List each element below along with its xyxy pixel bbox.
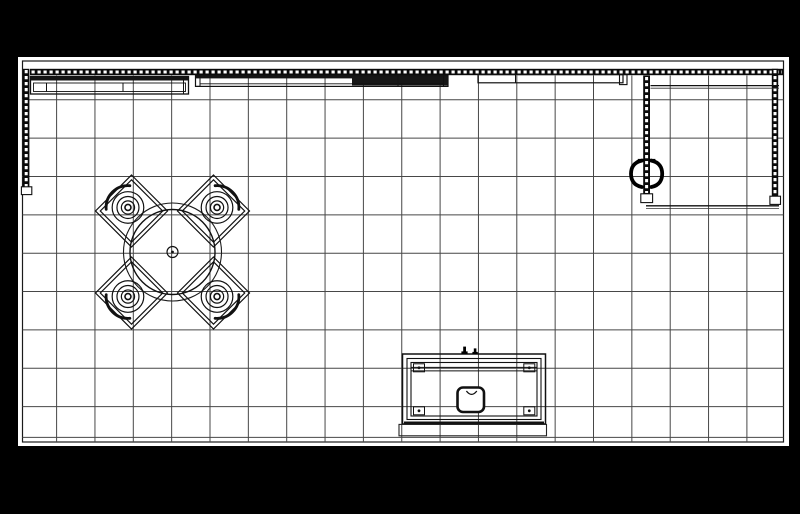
truss-band	[643, 76, 650, 195]
counter-bracket-dot	[418, 366, 421, 369]
back-wall-truss	[30, 69, 783, 75]
left-truss-foot	[21, 187, 31, 195]
floor-plan-viewport	[0, 0, 800, 514]
table-center-dot	[171, 251, 174, 254]
counter-clip	[472, 352, 477, 354]
right-truss-foot	[770, 196, 781, 204]
counter-bracket-dot	[528, 409, 531, 412]
counter-bracket-dot	[418, 409, 421, 412]
truss-band	[23, 69, 29, 189]
counter-sink	[458, 388, 485, 413]
closet-truss-foot	[641, 194, 653, 203]
left-wall-truss	[23, 69, 29, 189]
floor-plan-drawing	[0, 0, 800, 514]
header-panel-a-top	[31, 77, 189, 81]
counter-clip	[461, 351, 467, 353]
counter-bracket-dot	[528, 366, 531, 369]
closet-wall-truss	[643, 76, 650, 195]
